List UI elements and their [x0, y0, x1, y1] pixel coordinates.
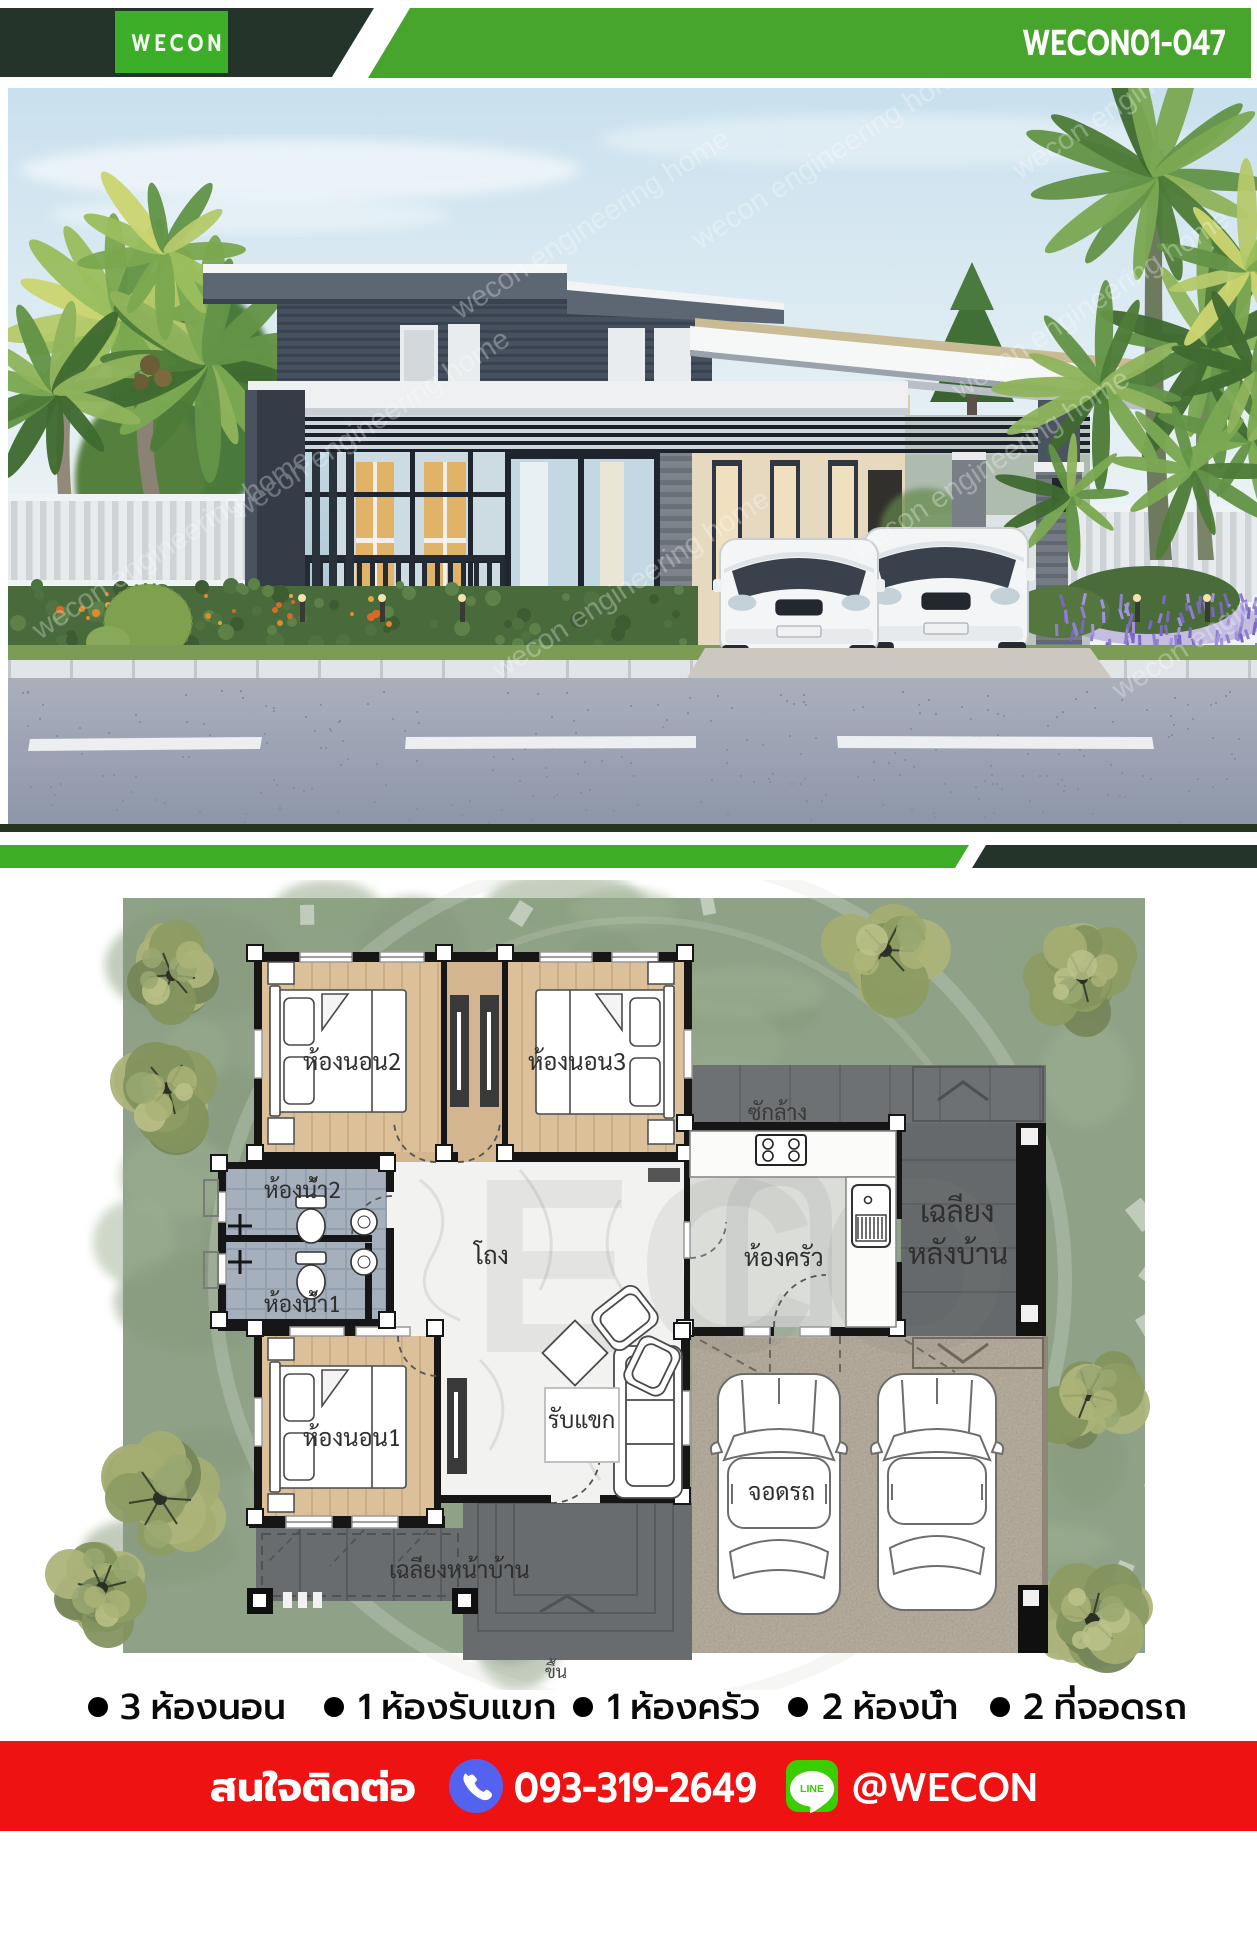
svg-text:LINE: LINE	[800, 1783, 824, 1795]
